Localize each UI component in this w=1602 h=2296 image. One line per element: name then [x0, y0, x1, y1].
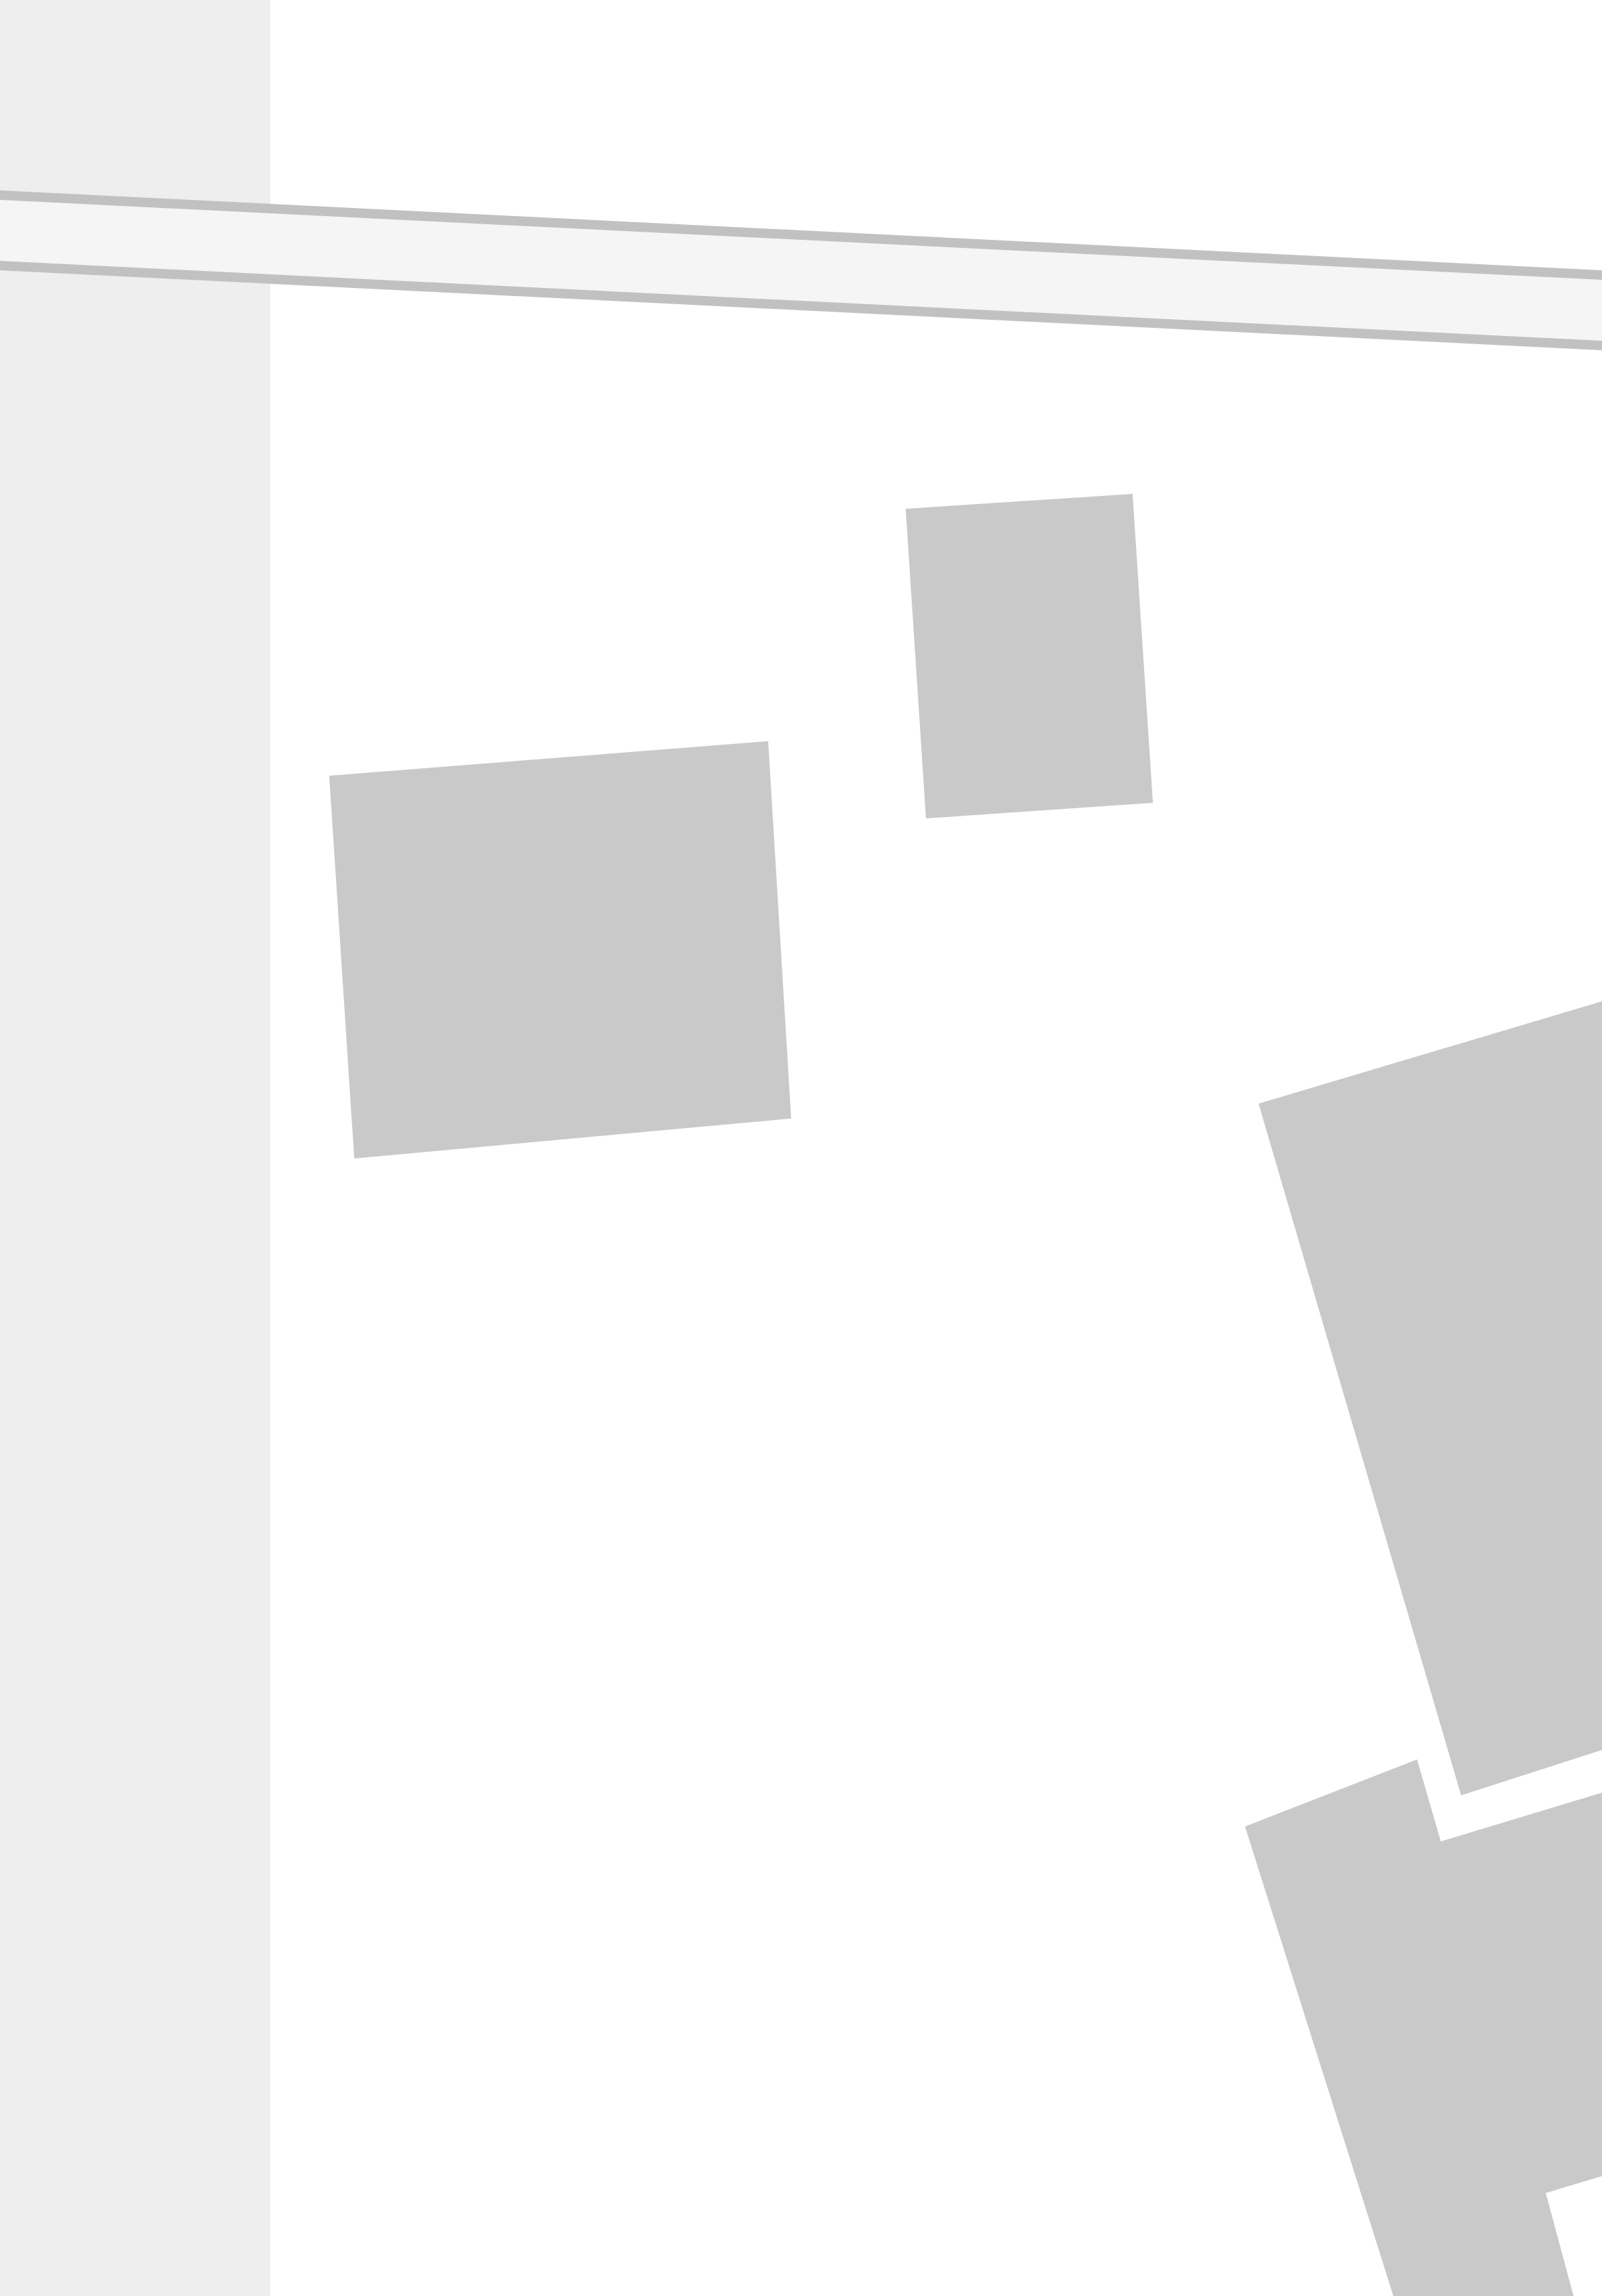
- building-small-top-middle: [906, 494, 1153, 818]
- map-viewport[interactable]: [0, 0, 1602, 2296]
- map-canvas[interactable]: [0, 0, 1602, 2296]
- building-large-middle-left: [329, 741, 791, 1159]
- landuse-area-left-strip: [0, 0, 270, 2296]
- building-bottom-right: [1245, 1759, 1602, 2296]
- building-upper-right: [1259, 1001, 1602, 1795]
